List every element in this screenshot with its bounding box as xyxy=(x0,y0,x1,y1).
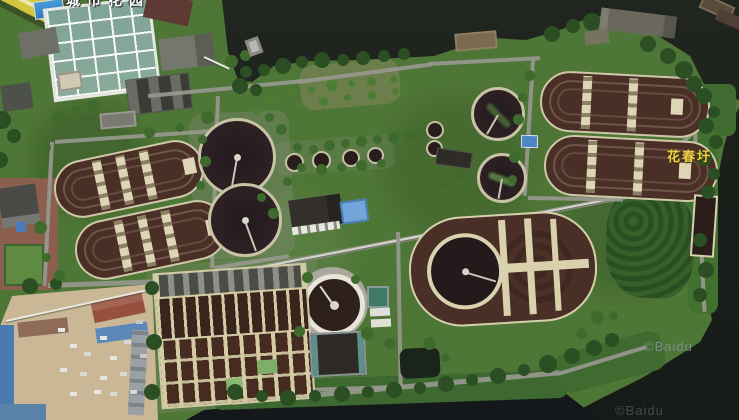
green-pool xyxy=(367,286,389,308)
blue-roof-office xyxy=(340,198,370,225)
shore-ruins-3 xyxy=(584,28,610,45)
aeration-cells-lower xyxy=(159,331,313,407)
ditch-platform xyxy=(671,98,684,115)
tree-cluster-dark xyxy=(240,66,252,78)
digester-tank xyxy=(367,147,384,164)
ditch-platform xyxy=(182,157,197,175)
digester-tank xyxy=(426,121,444,139)
small-gray-cluster xyxy=(99,110,136,129)
clarifier-tank xyxy=(477,153,527,203)
parked-trucks xyxy=(58,328,65,332)
digester-tank xyxy=(312,151,331,170)
clarifier-arm xyxy=(244,221,257,252)
aeration-basin-complex xyxy=(152,263,315,409)
clarifier-tank xyxy=(471,87,525,141)
dark-shed xyxy=(435,148,473,170)
stadium-clarifier xyxy=(425,231,505,311)
clarifier-tank xyxy=(208,183,282,257)
forest-patch xyxy=(603,188,697,300)
aeration-green-cell xyxy=(257,359,278,374)
oxidation-ditch-east-1 xyxy=(539,70,712,140)
top-label-partial-text: 城市花园 xyxy=(66,0,150,8)
clarifier-hub xyxy=(234,154,241,161)
top-label-clip: 城市花园 xyxy=(66,0,178,8)
dark-pond xyxy=(399,347,441,379)
pump-station xyxy=(57,70,83,91)
clarifier-tank-south xyxy=(303,274,365,336)
narrow-tank-east xyxy=(690,194,718,258)
aeration-green-cell xyxy=(226,378,243,389)
place-label: 花春圩 xyxy=(667,146,712,165)
oxidation-ditch-east-2 xyxy=(543,133,720,203)
tree-cluster-light xyxy=(288,88,295,95)
blue-gray-roof xyxy=(0,404,46,420)
blue-hut xyxy=(521,135,538,149)
baidu-watermark-faint: ©Baidu xyxy=(615,403,664,418)
white-tank-box xyxy=(370,307,390,316)
digester-tank xyxy=(342,149,360,167)
plaza-blue-shed xyxy=(16,222,26,232)
clarifier-arm xyxy=(486,115,499,135)
baidu-watermark: ©Baidu xyxy=(644,339,693,354)
gray-building-north xyxy=(158,33,215,71)
satellite-map-canvas[interactable]: 城市花园 花春圩 ©Baidu ©Baidu xyxy=(0,0,739,420)
digester-tank xyxy=(285,153,304,172)
dirt-patch xyxy=(298,58,402,112)
clarifier-hub xyxy=(330,301,339,310)
lawn-square xyxy=(4,244,44,286)
tree-cluster-mid xyxy=(293,143,302,152)
road-north-3 xyxy=(428,56,540,66)
clarifier-hub xyxy=(461,268,468,275)
clarifier-arm xyxy=(465,271,496,282)
stadium-basin xyxy=(406,208,600,329)
clarifier-hub xyxy=(242,217,249,224)
pump-house-south xyxy=(309,331,367,378)
shore-ruins-1 xyxy=(454,30,497,52)
white-tank-box xyxy=(371,318,391,327)
dark-building-left xyxy=(0,82,33,112)
